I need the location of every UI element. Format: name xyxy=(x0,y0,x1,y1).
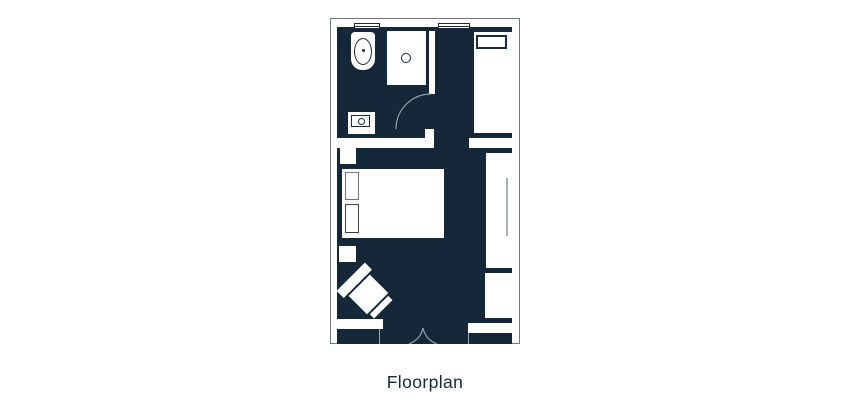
door-swing-lines xyxy=(331,19,521,345)
floorplan-outline xyxy=(330,18,520,344)
floorplan-caption: Floorplan xyxy=(280,372,570,393)
entry-door-arc-left xyxy=(409,328,423,344)
bathroom-door-arc xyxy=(396,94,431,129)
entry-door-arc-right xyxy=(423,328,437,344)
